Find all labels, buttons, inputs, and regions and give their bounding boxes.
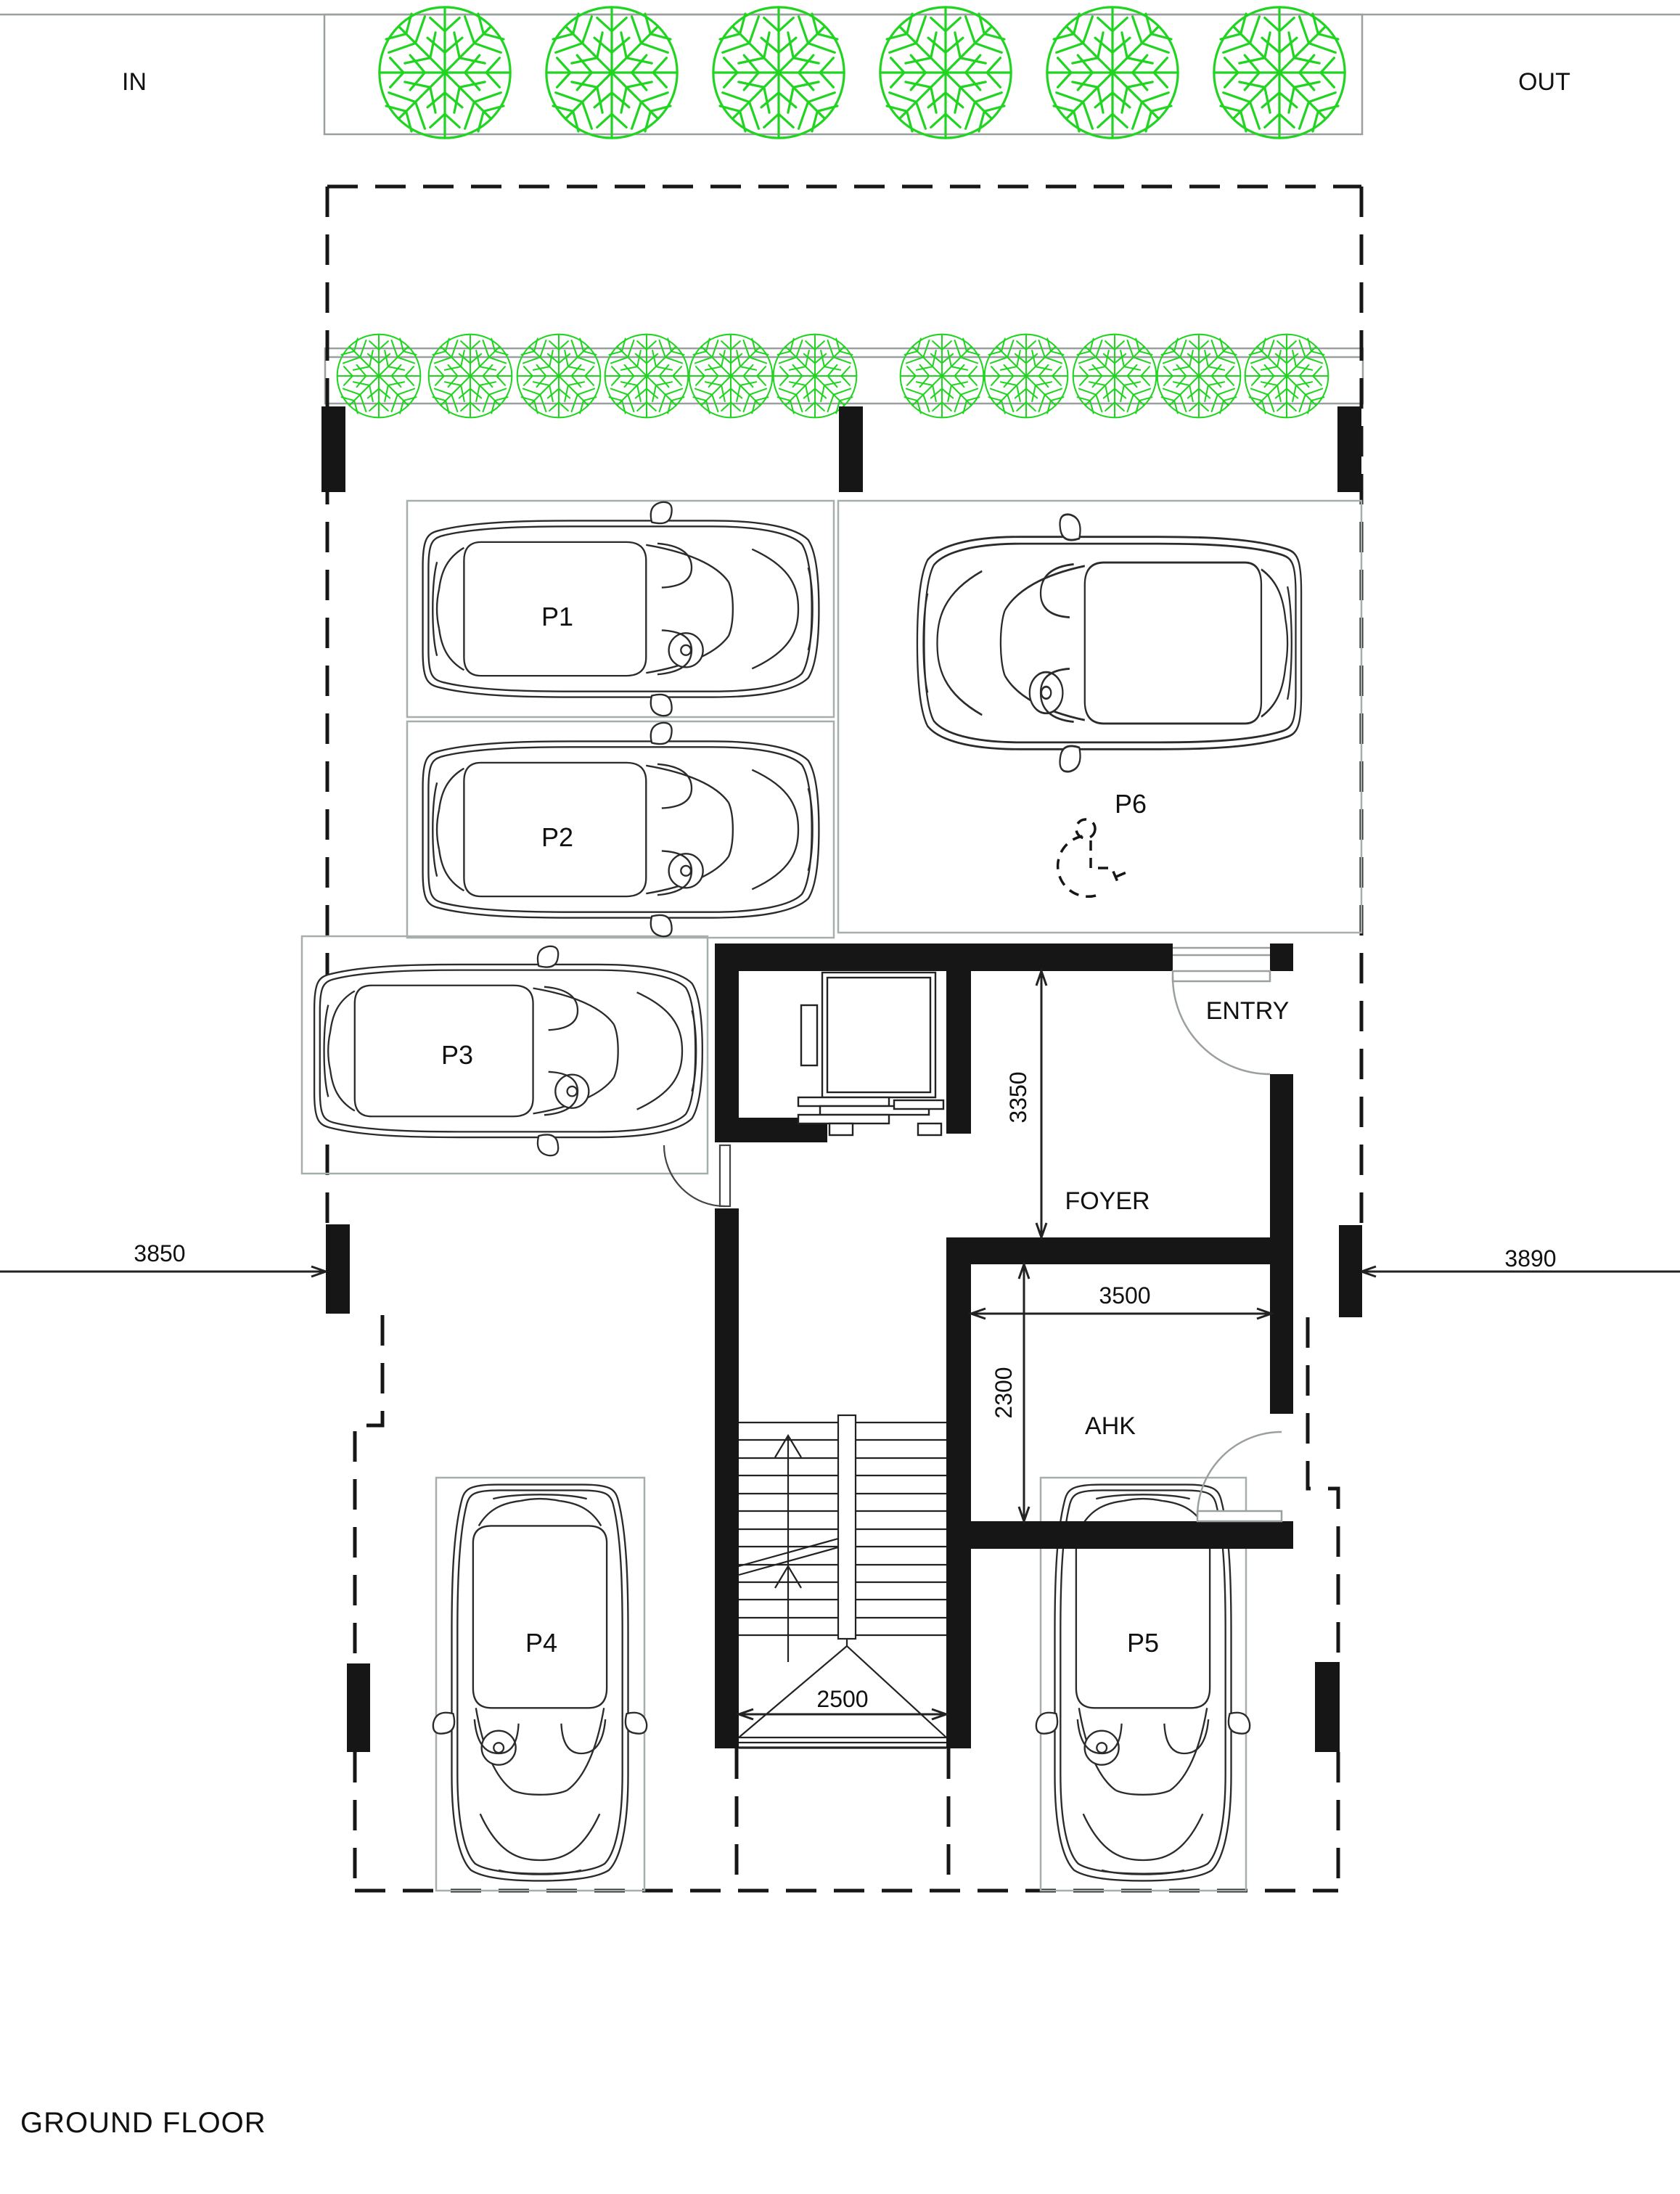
tree-icon [1157,335,1241,418]
dim-ahk-depth [1019,1264,1029,1521]
door-swing-icon [1173,977,1270,1074]
elevator-icon [798,973,943,1135]
tree-icon [774,335,857,418]
car-p4 [433,1485,647,1881]
wheelchair-icon [1058,819,1126,896]
page-title: GROUND FLOOR [20,2107,266,2139]
dim-ahk-width [971,1309,1271,1319]
spot-label-p1: P1 [541,602,573,631]
dim-text-3350: 3350 [1005,1071,1031,1123]
flow-out-label: OUT [1518,68,1570,96]
cars [314,502,1301,1881]
tree-icon [546,7,677,138]
dim-foyer-depth [1036,971,1046,1237]
dim-text-3500: 3500 [1099,1282,1150,1309]
tree-icon [380,7,510,138]
tree-icon [713,7,844,138]
tree-icon [605,335,689,418]
tree-row-planter [337,335,1329,418]
dim-text-2300: 2300 [991,1367,1017,1418]
flow-in-label: IN [122,68,147,96]
tree-icon [337,335,421,418]
tree-icon [901,335,984,418]
car-p6 [917,515,1301,771]
tree-icon [1245,335,1329,418]
car-p3 [314,946,702,1155]
room-label-foyer: FOYER [1065,1187,1150,1215]
spot-label-p6: P6 [1115,789,1147,819]
doors [664,948,1282,1521]
floor-plan-canvas: IN OUT P1 P2 P3 P4 P5 P6 ENTRY FOYER AHK… [0,0,1680,2194]
tree-icon [1047,7,1178,138]
tree-icon [689,335,773,418]
tree-icon [1214,7,1345,138]
spot-label-p3: P3 [441,1040,473,1070]
room-label-entry: ENTRY [1206,997,1290,1025]
dim-text-2500: 2500 [816,1686,868,1712]
tree-icon [429,335,512,418]
car-p1 [423,502,819,716]
tree-icon [517,335,601,418]
door-swing-icon [664,1145,725,1206]
tree-icon [985,335,1068,418]
dim-text-3890: 3890 [1504,1245,1556,1272]
elevator [798,973,943,1135]
room-label-ahk: AHK [1085,1412,1136,1440]
tree-row-top [380,7,1345,138]
dim-left-setback [0,1266,326,1277]
dim-text-3850: 3850 [134,1240,185,1266]
tree-icon [880,7,1011,138]
tree-icon [1073,335,1157,418]
spot-label-p2: P2 [541,822,573,852]
spot-label-p5: P5 [1127,1628,1159,1658]
garage-lobby-door [664,1145,730,1206]
spot-label-p4: P4 [525,1628,557,1658]
car-p2 [423,723,819,936]
